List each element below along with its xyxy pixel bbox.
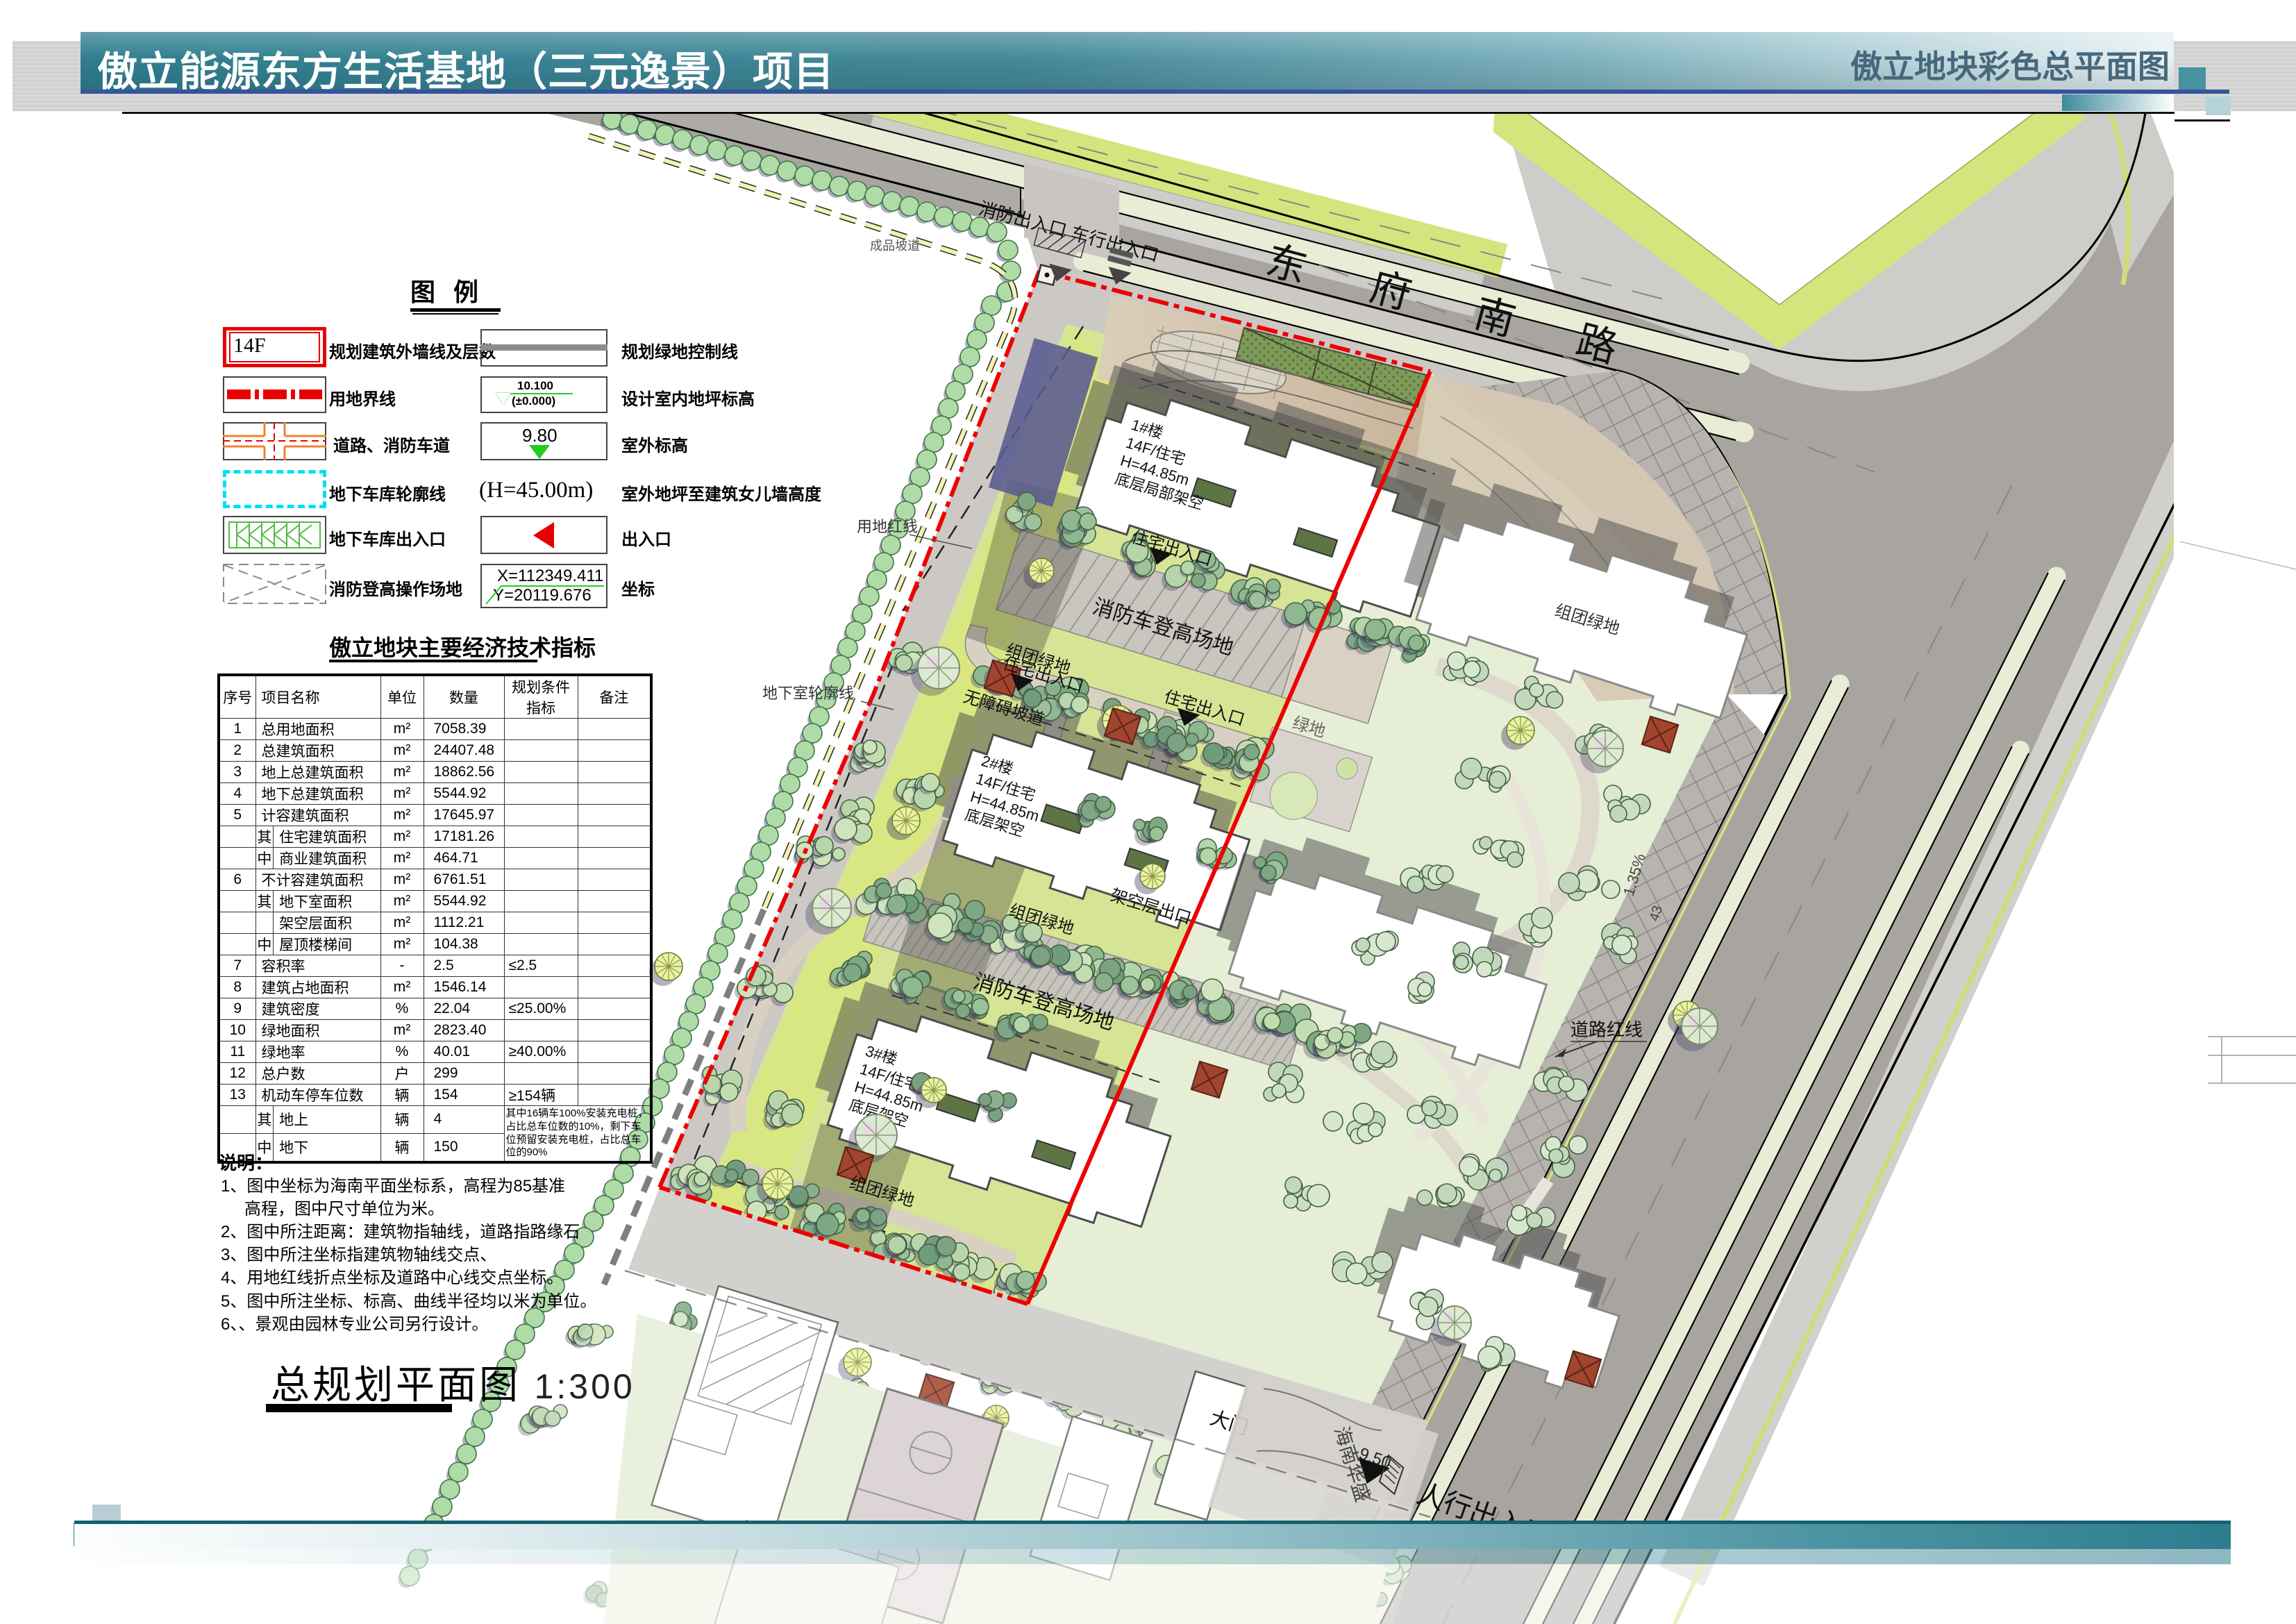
svg-text:道路红线: 道路红线 (1570, 1019, 1643, 1040)
svg-text:成品坡道: 成品坡道 (870, 239, 920, 253)
svg-text:用地红线: 用地红线 (857, 518, 918, 535)
svg-text:地下室轮廓线: 地下室轮廓线 (762, 685, 854, 702)
